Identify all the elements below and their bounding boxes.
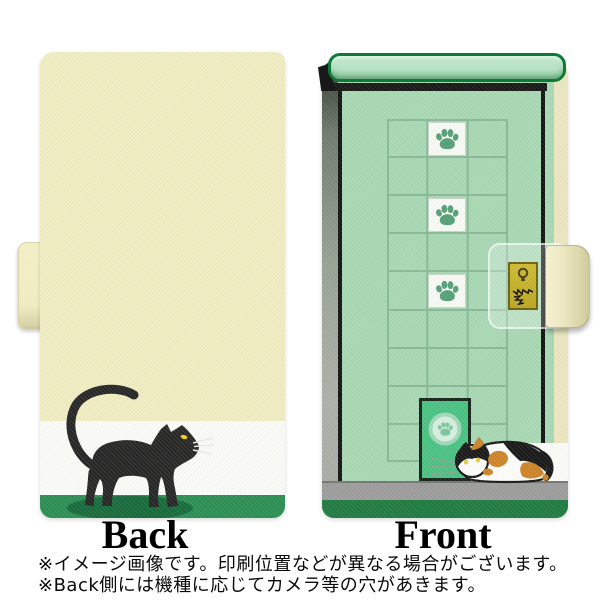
- note-line-2: ※Back側には機種に応じてカメラ等の穴があきます。: [38, 576, 598, 597]
- keyhole-icon: [510, 264, 536, 308]
- paw-tile: [428, 198, 466, 232]
- closure-strap: [545, 245, 590, 328]
- cat-eye: [476, 458, 480, 463]
- note-line-1: ※イメージ画像です。印刷位置などが異なる場合がございます。: [38, 555, 598, 576]
- black-cat-illustration: [55, 382, 215, 518]
- paw-print-icon: [434, 279, 460, 303]
- paw-print-icon: [434, 127, 460, 151]
- cat-tail-tip: [542, 474, 548, 480]
- disclaimer-notes: ※イメージ画像です。印刷位置などが異なる場合がございます。 ※Back側には機種…: [38, 555, 598, 596]
- door-frame-left: [338, 91, 342, 481]
- paw-print-icon: [434, 203, 460, 227]
- front-view-label: Front: [358, 514, 528, 556]
- paw-tile: [428, 122, 466, 156]
- cat-eye: [464, 460, 468, 465]
- product-image: Back Front ※イメージ画像です。印刷位置などが異なる場合がございます。…: [0, 0, 600, 600]
- case-top-bar: [328, 53, 566, 82]
- front-case: [322, 60, 568, 518]
- scratch-marks-icon: [513, 290, 533, 304]
- door-lintel: [332, 83, 547, 91]
- paw-tile: [428, 274, 466, 308]
- lock-plate: [508, 262, 538, 310]
- front-spine-edge: [322, 60, 338, 518]
- cat-orange-patch: [483, 469, 493, 476]
- back-view-label: Back: [60, 514, 230, 556]
- calico-cat-illustration: [425, 425, 555, 485]
- back-case: [40, 52, 285, 518]
